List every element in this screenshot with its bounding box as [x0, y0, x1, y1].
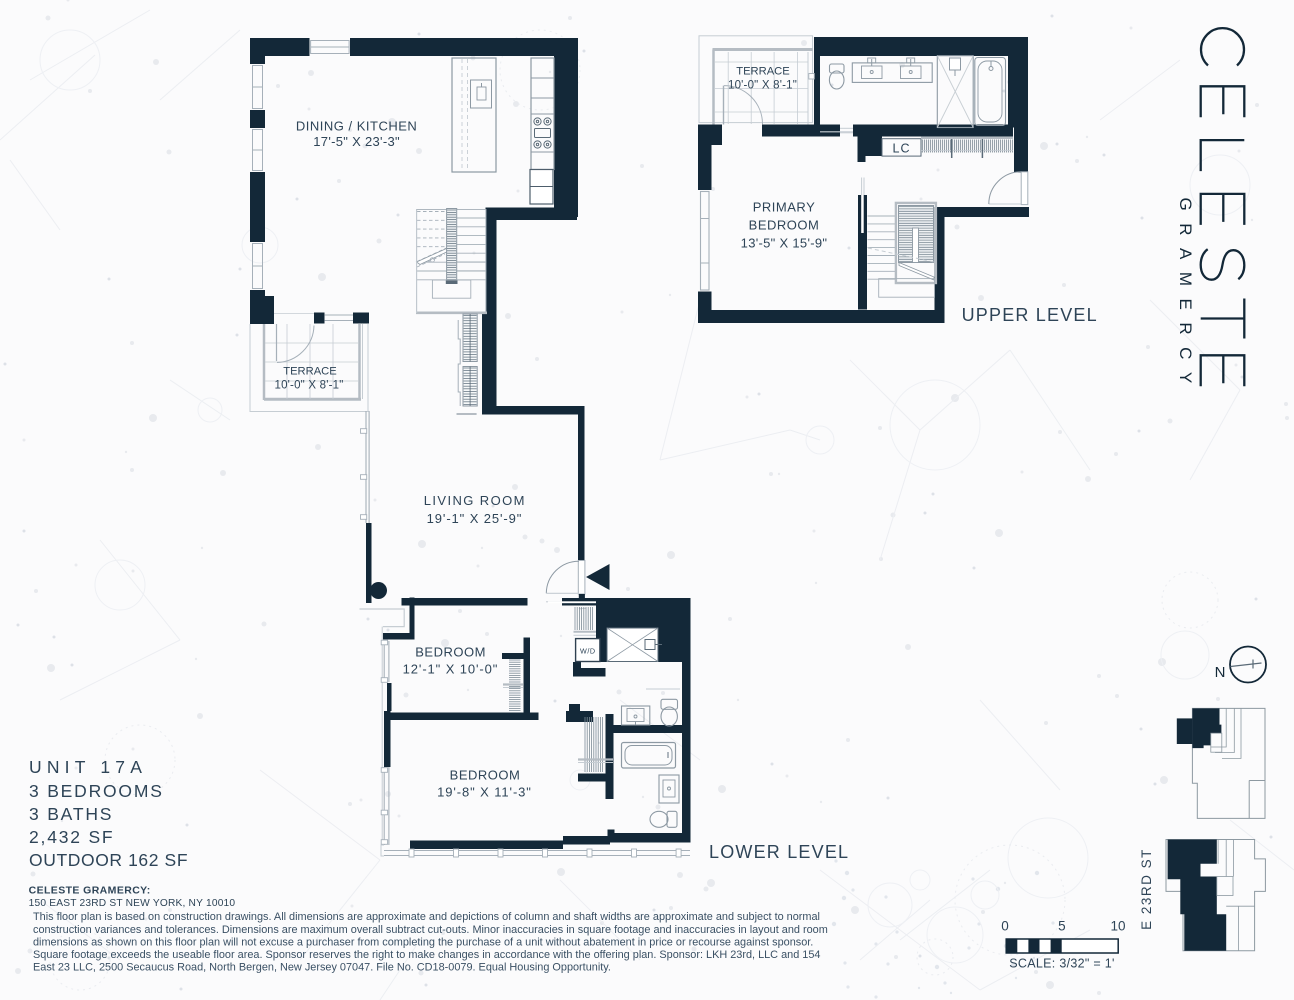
svg-text:13'-5" X 15'-9": 13'-5" X 15'-9" [741, 236, 828, 251]
svg-text:UNIT 17A: UNIT 17A [29, 757, 147, 777]
svg-text:19'-1" X 25'-9": 19'-1" X 25'-9" [427, 511, 523, 526]
svg-text:19'-8" X 11'-3": 19'-8" X 11'-3" [437, 785, 532, 800]
svg-text:CELESTE GRAMERCY:: CELESTE GRAMERCY: [29, 885, 151, 897]
svg-text:TERRACE: TERRACE [736, 66, 789, 78]
svg-text:East 23 LLC, 2500 Secaucus Roa: East 23 LLC, 2500 Secaucus Road, North B… [33, 961, 611, 973]
svg-text:10: 10 [1110, 919, 1125, 934]
svg-text:BEDROOM: BEDROOM [749, 218, 820, 233]
svg-text:10'-0" X 8'-1": 10'-0" X 8'-1" [274, 380, 343, 392]
svg-text:3 BATHS: 3 BATHS [29, 804, 113, 824]
svg-text:construction variances and tol: construction variances and tolerances. D… [33, 924, 828, 936]
svg-text:N: N [1215, 664, 1226, 681]
svg-text:5: 5 [1058, 919, 1066, 934]
svg-text:SCALE: 3/32" = 1': SCALE: 3/32" = 1' [1009, 957, 1114, 971]
svg-text:12'-1" X 10'-0": 12'-1" X 10'-0" [403, 662, 499, 677]
svg-text:dimensions as shown on this fl: dimensions as shown on this floor plan w… [33, 936, 813, 948]
svg-text:BEDROOM: BEDROOM [415, 645, 486, 660]
svg-text:LOWER LEVEL: LOWER LEVEL [709, 842, 849, 862]
svg-text:BEDROOM: BEDROOM [450, 768, 521, 783]
svg-text:GRAMERCY: GRAMERCY [1176, 198, 1195, 396]
svg-text:17'-5" X 23'-3": 17'-5" X 23'-3" [313, 134, 400, 149]
svg-text:0: 0 [1001, 919, 1009, 934]
svg-text:3 BEDROOMS: 3 BEDROOMS [29, 781, 164, 801]
svg-text:W/D: W/D [580, 646, 595, 655]
svg-text:Square footage exceeds the use: Square footage exceeds the useable floor… [33, 949, 820, 961]
svg-text:10'-0" X 8'-1": 10'-0" X 8'-1" [728, 80, 797, 92]
svg-text:TERRACE: TERRACE [283, 366, 336, 378]
svg-text:LC: LC [893, 142, 911, 156]
svg-text:150 EAST 23RD ST NEW YORK, NY: 150 EAST 23RD ST NEW YORK, NY 10010 [29, 898, 236, 909]
svg-text:OUTDOOR 162 SF: OUTDOOR 162 SF [29, 850, 188, 870]
svg-text:This floor plan is based on co: This floor plan is based on construction… [33, 911, 820, 923]
svg-text:PRIMARY: PRIMARY [753, 200, 816, 215]
svg-text:LIVING ROOM: LIVING ROOM [424, 493, 526, 508]
svg-text:E 23RD ST: E 23RD ST [1139, 848, 1154, 930]
svg-text:UPPER LEVEL: UPPER LEVEL [962, 305, 1098, 325]
svg-text:2,432 SF: 2,432 SF [29, 827, 114, 847]
svg-text:DINING / KITCHEN: DINING / KITCHEN [296, 119, 417, 134]
